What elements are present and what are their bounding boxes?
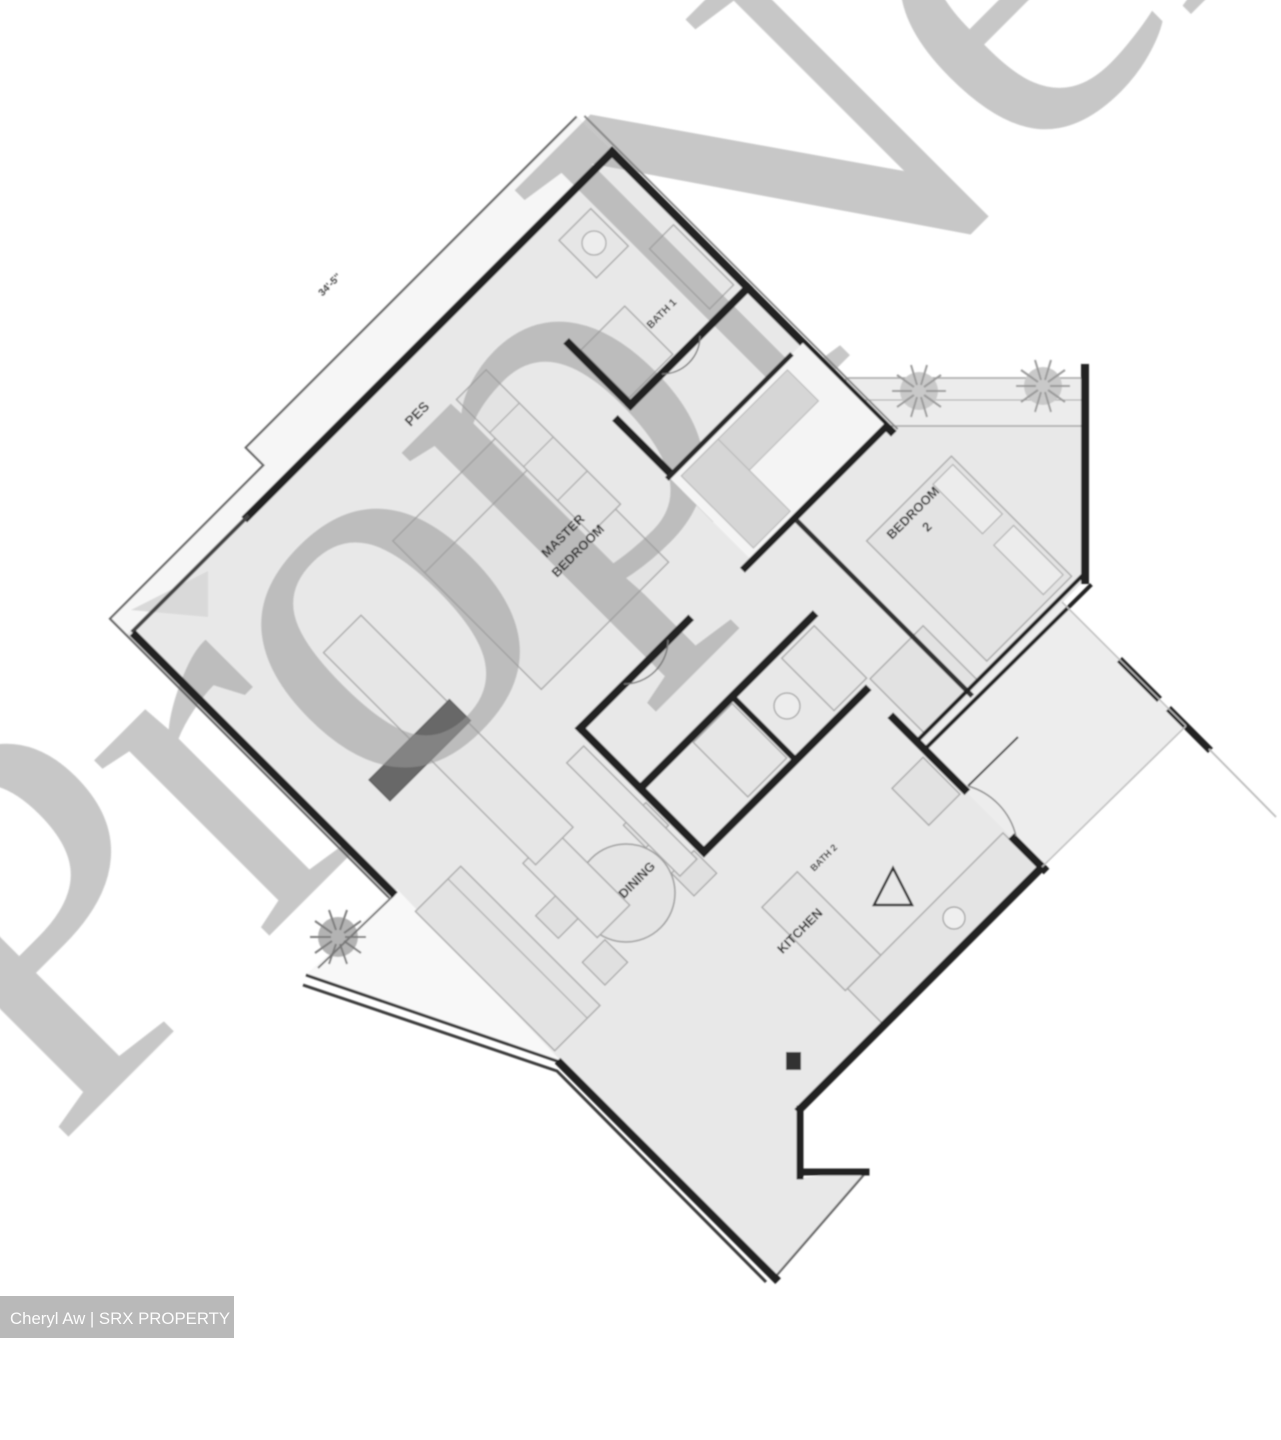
svg-text:Cheryl Aw | SRX PROPERTY: Cheryl Aw | SRX PROPERTY — [10, 1309, 230, 1328]
